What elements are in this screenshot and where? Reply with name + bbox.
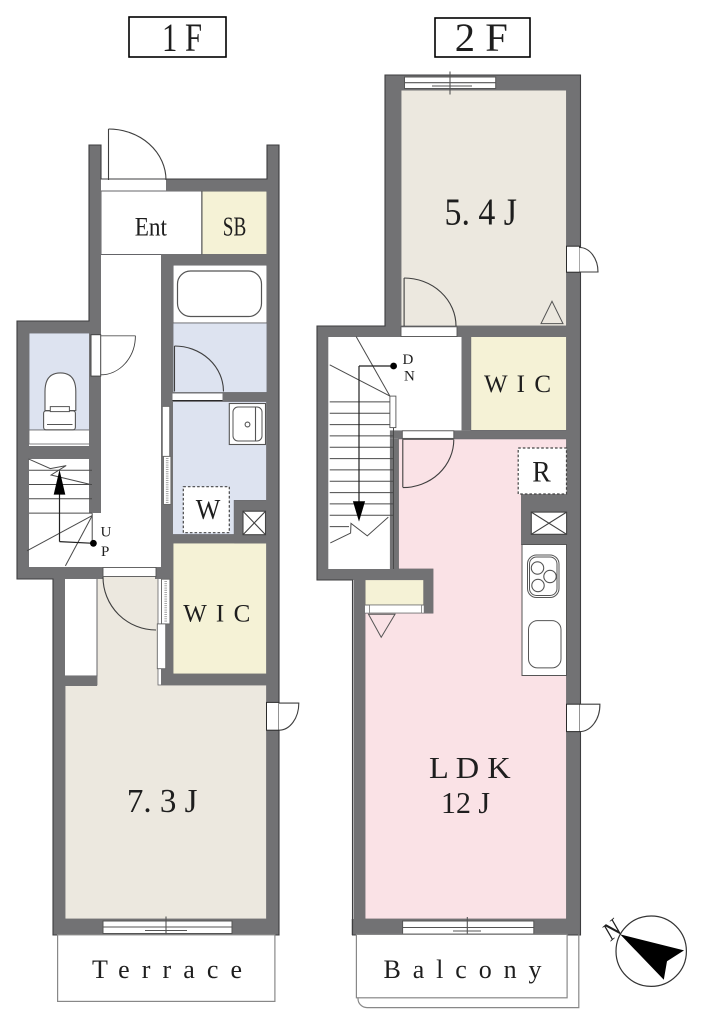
svg-text:W I C: W I C bbox=[484, 371, 551, 398]
svg-text:D: D bbox=[403, 352, 414, 368]
svg-text:R: R bbox=[532, 455, 551, 488]
svg-text:5. 4 J: 5. 4 J bbox=[445, 191, 518, 233]
svg-text:N: N bbox=[404, 369, 415, 385]
svg-text:1 F: 1 F bbox=[162, 15, 202, 60]
svg-text:U: U bbox=[101, 525, 112, 541]
svg-text:P: P bbox=[101, 544, 109, 560]
svg-text:SB: SB bbox=[223, 211, 247, 241]
svg-text:2 F: 2 F bbox=[455, 15, 508, 60]
svg-text:12 J: 12 J bbox=[441, 785, 490, 820]
svg-text:7. 3 J: 7. 3 J bbox=[127, 783, 198, 820]
svg-text:W: W bbox=[196, 494, 221, 526]
svg-text:L D K: L D K bbox=[429, 750, 511, 785]
svg-text:W I C: W I C bbox=[183, 600, 250, 627]
svg-text:Ent: Ent bbox=[135, 212, 168, 241]
